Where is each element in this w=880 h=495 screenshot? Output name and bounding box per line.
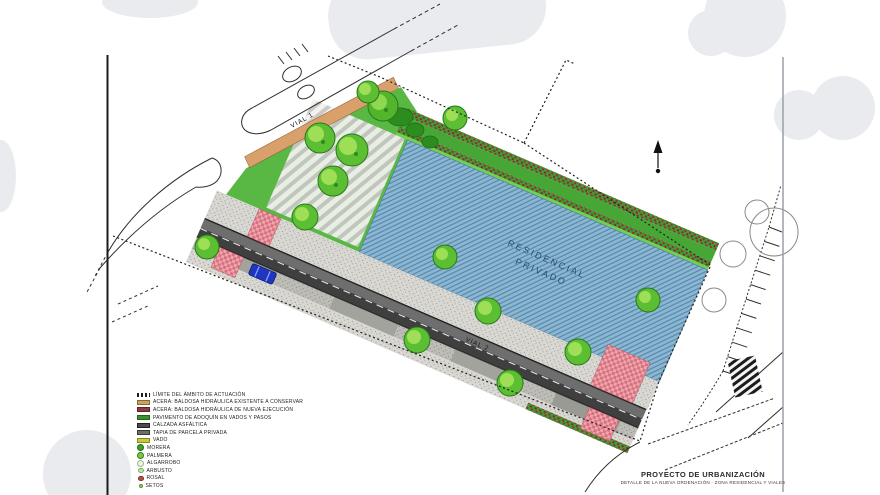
legend-item-label: ARBUSTO [147,468,172,474]
tree-icon [475,298,501,324]
legend-swatch [137,423,150,428]
legend-item-label: LÍMITE DEL ÁMBITO DE ACTUACIÓN [153,392,245,398]
legend-item-label: ACERA: BALDOSA HIDRÁULICA DE NUEVA EJECU… [153,407,293,413]
legend-item: PALMERA [137,452,437,460]
legend-swatch [137,460,144,467]
legend-swatch [137,430,150,435]
legend-swatch [137,393,150,397]
tree-icon [433,245,457,269]
legend-item: PAVIMENTO DE ADOQUÍN EN VADOS Y PASOS [137,414,437,422]
legend-item: MORERA [137,444,437,452]
drawing-subtitle: DETALLE DE LA NUEVA ORDENACIÓN · ZONA RE… [598,480,808,485]
legend-item: SETOS [137,482,437,490]
legend-item: ARBUSTO [137,467,437,475]
legend-swatch [138,476,144,482]
tree-icon [305,123,335,153]
legend-swatch [137,444,144,451]
legend-swatch [137,415,150,420]
tree-icon [636,288,660,312]
tree-icon [336,134,368,166]
tree-icon [292,204,318,230]
legend-item-label: ROSAL [147,475,165,481]
legend-swatch [137,438,150,443]
tree-icon [318,166,348,196]
legend-item-label: CALZADA ASFÁLTICA [153,422,207,428]
legend-swatch [137,407,150,412]
title-block: PROYECTO DE URBANIZACIÓN DETALLE DE LA N… [598,470,808,485]
legend-item-label: PAVIMENTO DE ADOQUÍN EN VADOS Y PASOS [153,415,271,421]
legend-swatch [138,468,144,474]
legend-item: ROSAL [137,475,437,483]
tree-icon [565,339,591,365]
legend-swatch [137,400,150,405]
legend: LÍMITE DEL ÁMBITO DE ACTUACIÓNACERA: BAL… [137,391,437,490]
tree-icon [404,327,430,353]
legend-item: LÍMITE DEL ÁMBITO DE ACTUACIÓN [137,391,437,399]
legend-item-label: ALGARROBO [147,460,180,466]
tree-icon [497,370,523,396]
drawing-title: PROYECTO DE URBANIZACIÓN [598,470,808,479]
urbanization-plan-drawing: VIAL 2 RESIDENCIAL PRIVADO [0,0,880,495]
tree-icon [195,235,219,259]
legend-item-label: SETOS [146,483,164,489]
legend-item: ALGARROBO [137,459,437,467]
north-arrow-icon [654,140,663,173]
tree-icon [357,81,379,103]
legend-item: VADO [137,437,437,445]
legend-item: TAPIA DE PARCELA PRIVADA [137,429,437,437]
legend-item-label: VADO [153,437,168,443]
legend-item: CALZADA ASFÁLTICA [137,421,437,429]
legend-item: ACERA: BALDOSA HIDRÁULICA EXISTENTE A CO… [137,399,437,407]
legend-item-label: PALMERA [147,453,172,459]
legend-swatch [137,452,144,459]
legend-item-label: TAPIA DE PARCELA PRIVADA [153,430,227,436]
legend-item-label: ACERA: BALDOSA HIDRÁULICA EXISTENTE A CO… [153,399,303,405]
legend-swatch [139,484,143,488]
zebra-crossing [728,355,763,397]
legend-item-label: MORERA [147,445,170,451]
tree-icon [443,106,467,130]
news-image-site-plan: VIAL 2 RESIDENCIAL PRIVADO [0,0,880,495]
legend-item: ACERA: BALDOSA HIDRÁULICA DE NUEVA EJECU… [137,406,437,414]
